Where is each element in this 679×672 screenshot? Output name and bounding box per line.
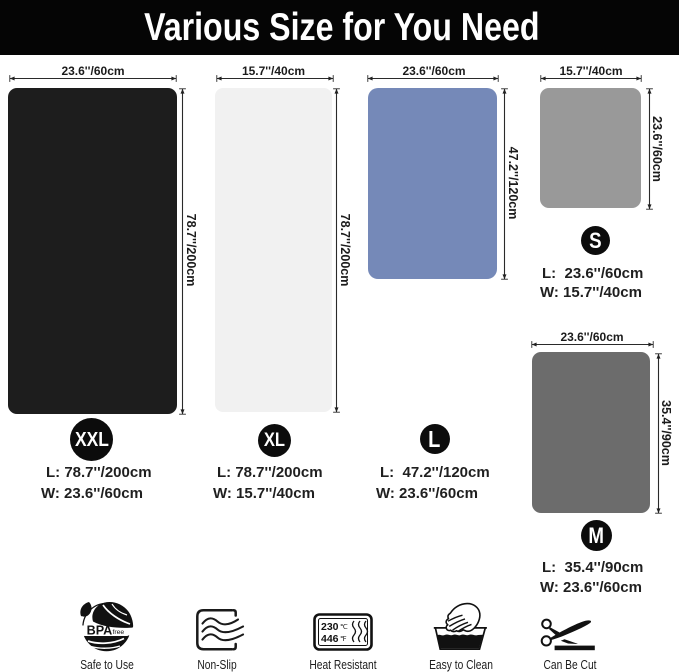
svg-text:BPA: BPA: [87, 624, 113, 638]
svg-text:℃: ℃: [340, 624, 348, 631]
svg-text:℉: ℉: [340, 636, 347, 643]
svg-text:free: free: [113, 629, 125, 636]
svg-text:446: 446: [321, 633, 339, 645]
svg-text:230: 230: [321, 621, 339, 633]
